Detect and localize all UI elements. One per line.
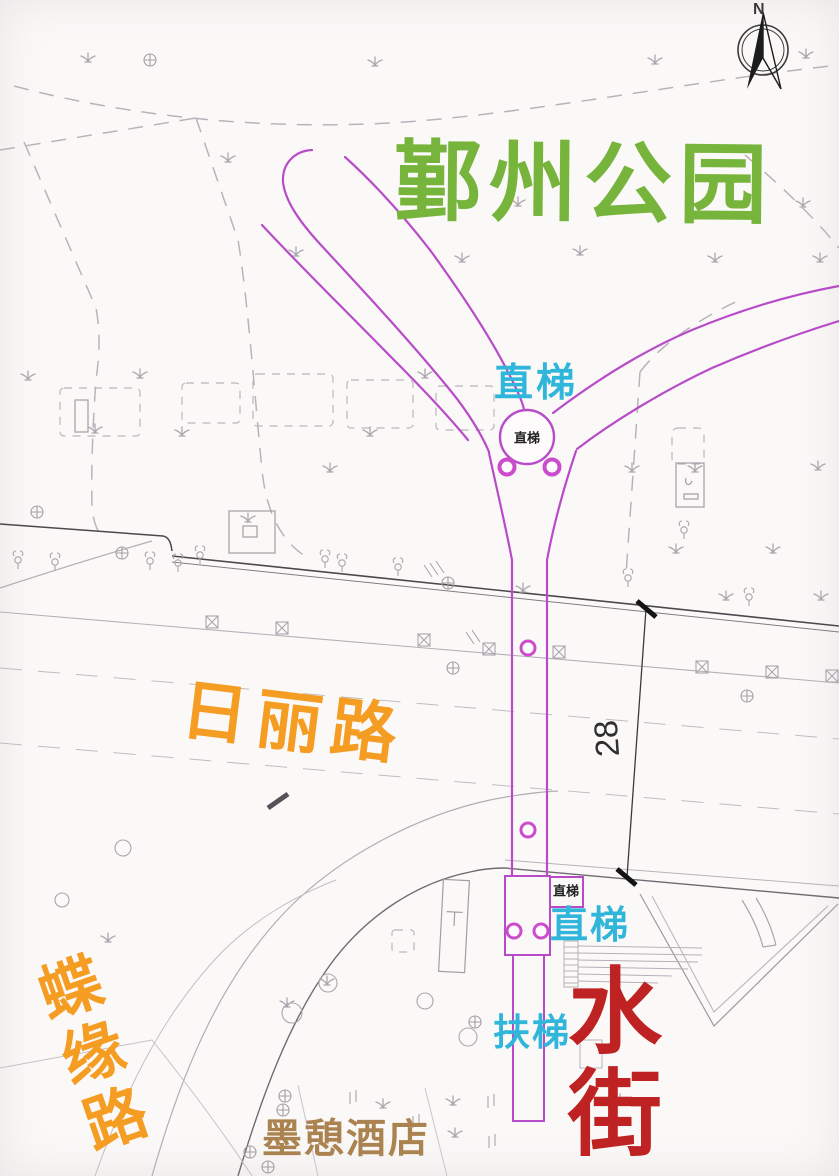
water-street-label: 水街 — [560, 962, 654, 1166]
site-plan-map: N 鄞州公园 直梯 直梯 日丽路 28 直梯 直梯 扶梯 水街 蝶缘路 墨憩酒店 — [0, 0, 839, 1176]
park-name-label: 鄞州公园 — [394, 138, 775, 229]
elevator-top-label: 直梯 — [494, 364, 578, 403]
hotel-label: 墨憩酒店 — [262, 1119, 430, 1159]
elevator-bottom-label: 直梯 — [550, 907, 630, 945]
elevator-top-marker-label: 直梯 — [514, 432, 540, 445]
pedestrian-path — [262, 150, 839, 1121]
north-label: N — [753, 2, 765, 18]
dimension-label: 28 — [589, 719, 624, 758]
road-lines — [0, 524, 839, 898]
path-columns — [500, 460, 560, 939]
elevator-bottom-marker-label: 直梯 — [553, 885, 579, 898]
